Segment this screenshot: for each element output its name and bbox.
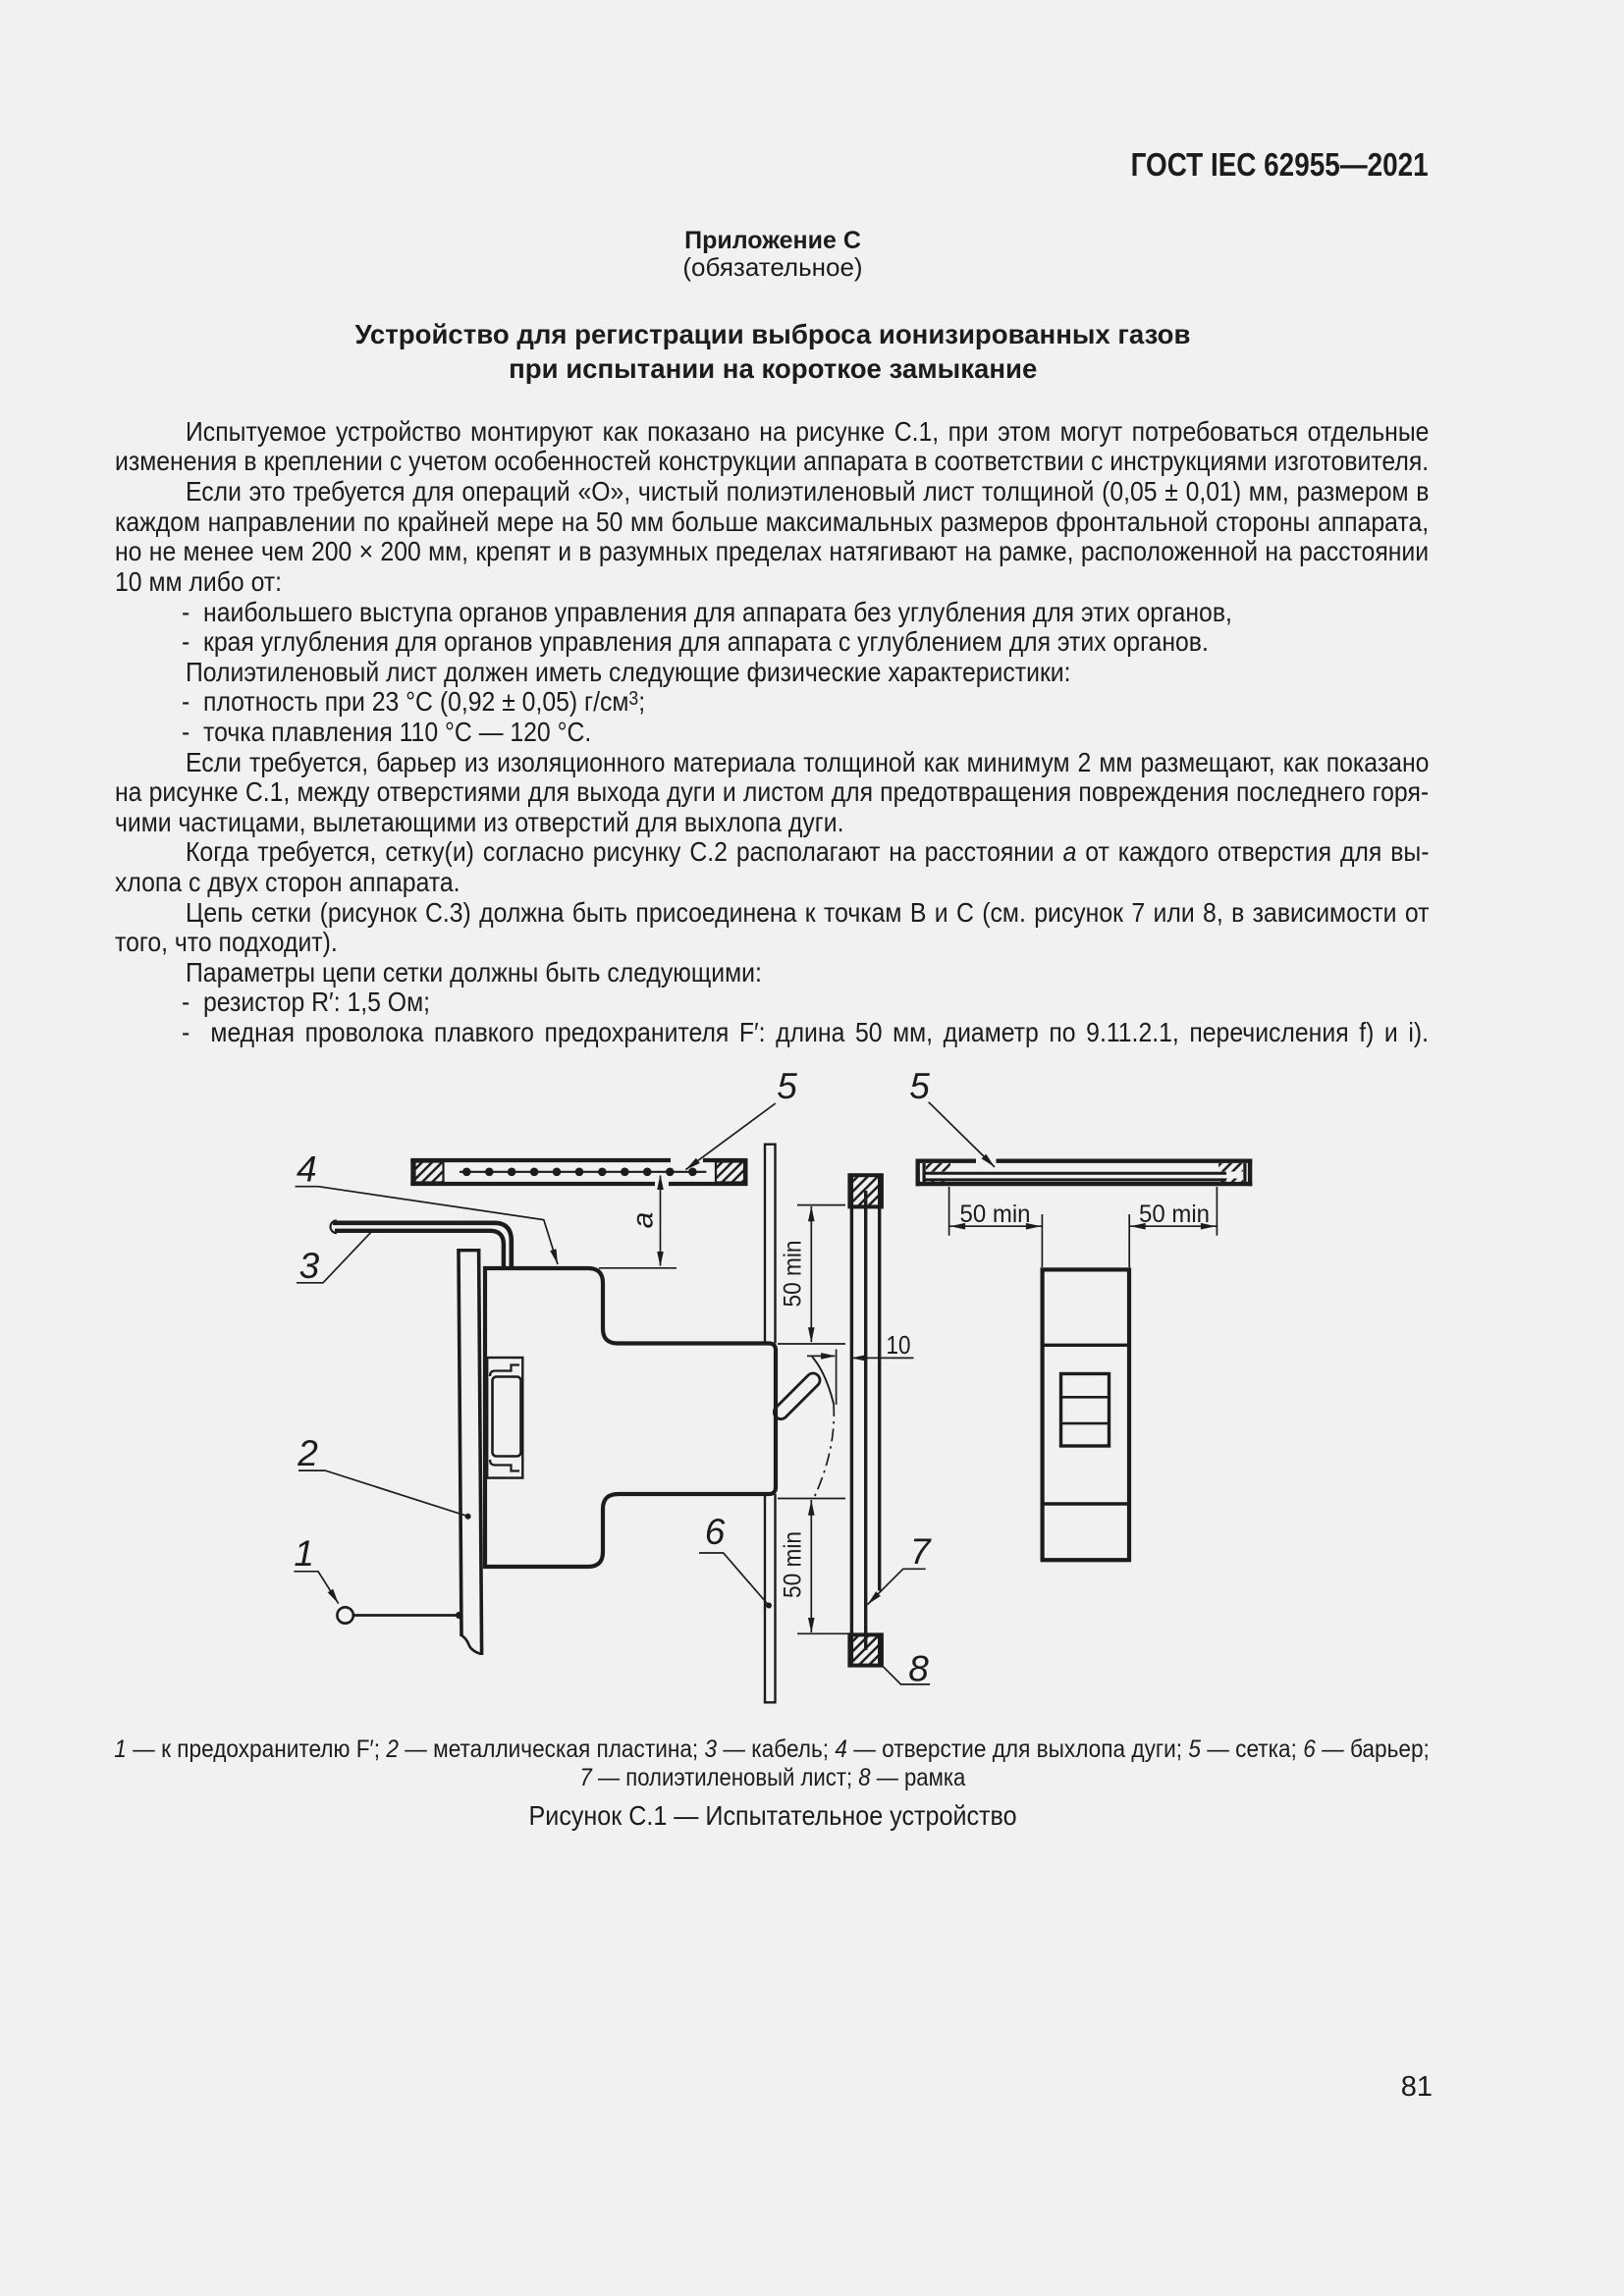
svg-text:6: 6 <box>705 1512 726 1552</box>
svg-text:1: 1 <box>294 1533 314 1574</box>
svg-text:3: 3 <box>299 1246 320 1286</box>
svg-text:a: a <box>627 1212 660 1229</box>
svg-text:50 min: 50 min <box>780 1531 807 1598</box>
svg-text:50 min: 50 min <box>780 1241 807 1308</box>
svg-text:5: 5 <box>777 1066 797 1106</box>
svg-text:50 min: 50 min <box>960 1201 1031 1228</box>
svg-text:7: 7 <box>910 1531 932 1572</box>
svg-text:50 min: 50 min <box>1139 1201 1210 1228</box>
svg-text:2: 2 <box>297 1433 318 1473</box>
svg-text:8: 8 <box>908 1649 929 1689</box>
svg-text:10: 10 <box>887 1330 911 1360</box>
svg-text:5: 5 <box>909 1066 930 1106</box>
svg-text:4: 4 <box>297 1149 317 1190</box>
